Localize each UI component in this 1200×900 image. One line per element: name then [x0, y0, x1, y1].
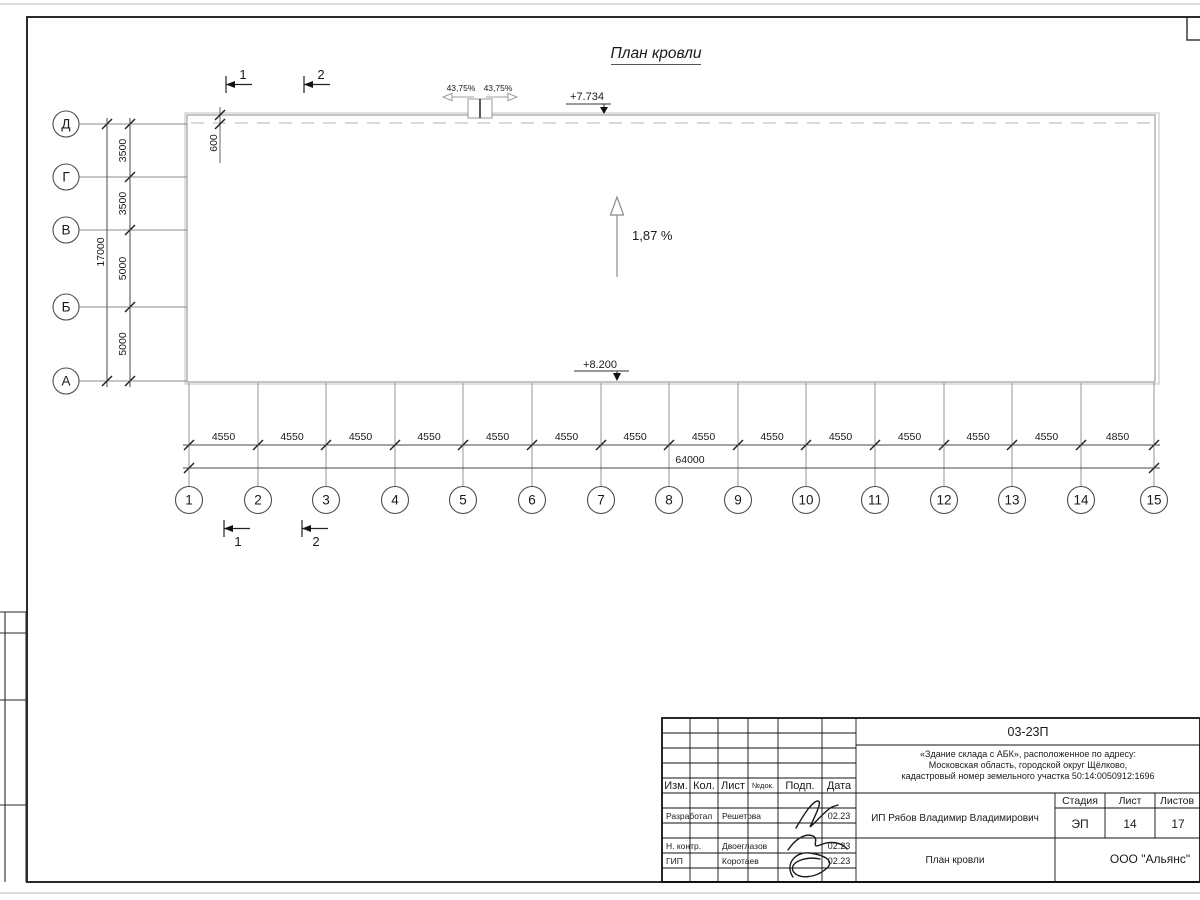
elevation-mark-top: +7.734: [566, 91, 611, 114]
col-axis-label: 3: [322, 493, 330, 508]
drawing-sheet: План кровли ДГВБА35003500500050001234567…: [0, 0, 1200, 900]
project-address-line2: Московская область, городской округ Щёлк…: [929, 760, 1127, 770]
page-title: План кровли: [611, 45, 702, 62]
col-dim-label: 4550: [623, 431, 647, 443]
elevation-top-label: +7.734: [570, 91, 604, 103]
stamp-name-ncontrol: Двоеглазов: [722, 841, 768, 851]
stamp-header-podp: Подп.: [785, 780, 814, 792]
col-axis-label: 6: [528, 493, 536, 508]
row-dim-label: 3500: [117, 139, 129, 163]
slope-value-label: 1,87 %: [632, 228, 673, 243]
doc-number: 03-23П: [1008, 725, 1049, 739]
col-dim-label: 4550: [486, 431, 510, 443]
col-dim-label: 4550: [555, 431, 579, 443]
canopy-slope-left-label: 43,75%: [447, 83, 476, 93]
corner-box: [1187, 17, 1200, 40]
sheet-value: 14: [1123, 817, 1137, 831]
row-axis-label: А: [61, 374, 70, 389]
stage-label: Стадия: [1062, 795, 1098, 807]
section-arrow-icon: [224, 525, 233, 532]
col-axis-label: 13: [1004, 493, 1019, 508]
stamp-role-ncontrol: Н. контр.: [666, 841, 701, 851]
sheet-label: Лист: [1119, 795, 1142, 807]
slope-arrow-right-icon: [508, 93, 517, 100]
col-axis-label: 8: [665, 493, 673, 508]
project-address-line1: «Здание склада с АБК», расположенное по …: [920, 749, 1136, 759]
stamp-name-developer: Решетова: [722, 811, 761, 821]
section-arrow-icon: [302, 525, 311, 532]
col-axis-label: 11: [868, 493, 882, 508]
col-dim-label: 4550: [349, 431, 373, 443]
sheets-value: 17: [1171, 817, 1185, 831]
col-axis-label: 5: [459, 493, 467, 508]
col-axis-label: 12: [936, 493, 951, 508]
roof-outline: [185, 113, 1159, 384]
row-dim-label: 3500: [117, 192, 129, 216]
row-dim-label: 5000: [117, 257, 129, 281]
section-mark-1-top: 1: [226, 67, 252, 93]
section-mark-1-bottom: 1: [224, 520, 250, 549]
col-dim-label: 4550: [898, 431, 922, 443]
col-dim-label: 4550: [966, 431, 990, 443]
stamp-date-gip: 02.23: [828, 856, 851, 866]
edge-offset-label: 600: [208, 134, 220, 152]
col-axis-label: 14: [1073, 493, 1089, 508]
side-stamp: [0, 612, 26, 882]
col-axis-label: 1: [185, 493, 193, 508]
row-dim-label: 5000: [117, 332, 129, 356]
stamp-header-doc: №док.: [752, 781, 774, 790]
slope-indicator: 1,87 %: [611, 197, 673, 277]
slope-arrow-left-icon: [443, 93, 452, 100]
stamp-header-list: Лист: [721, 780, 745, 792]
total-width-dim: 64000: [675, 454, 704, 466]
stage-value: ЭП: [1071, 817, 1088, 831]
stamp-date-developer: 02.23: [828, 811, 851, 821]
client-name: ИП Рябов Владимир Владимирович: [871, 812, 1039, 824]
stamp-header-izm: Изм.: [664, 780, 688, 792]
slope-arrow-icon: [611, 197, 624, 215]
stamp-header-kol: Кол.: [693, 780, 715, 792]
axes-and-dimensions: ДГВБА35003500500050001234567891011121314…: [53, 111, 1168, 514]
section-number: 2: [312, 534, 319, 549]
down-arrow-icon: [613, 373, 621, 381]
col-dim-label: 4550: [829, 431, 853, 443]
drawing-title: План кровли: [926, 855, 985, 866]
canopy-slope-right-label: 43,75%: [484, 83, 513, 93]
col-axis-label: 4: [391, 493, 399, 508]
col-dim-label: 4550: [212, 431, 236, 443]
col-axis-label: 15: [1146, 493, 1161, 508]
dimension-lines: 64000 17000: [95, 118, 1160, 468]
section-number: 1: [234, 534, 241, 549]
sheets-label: Листов: [1160, 795, 1195, 807]
title-block: 03-23П «Здание склада с АБК», расположен…: [662, 718, 1200, 882]
stamp-role-gip: ГИП: [666, 856, 683, 866]
col-axis-label: 10: [798, 493, 813, 508]
row-axis-label: Б: [62, 300, 71, 315]
signature-gip: [790, 853, 830, 877]
col-dim-label: 4550: [1035, 431, 1059, 443]
col-dim-label: 4550: [417, 431, 441, 443]
section-mark-2-top: 2: [304, 67, 330, 93]
col-dim-label: 4550: [280, 431, 304, 443]
col-dim-label: 4550: [760, 431, 784, 443]
row-axis-label: В: [61, 223, 70, 238]
section-arrow-icon: [226, 81, 235, 88]
col-axis-label: 7: [597, 493, 605, 508]
col-axis-label: 2: [254, 493, 262, 508]
section-number: 1: [239, 67, 246, 82]
col-axis-label: 9: [734, 493, 742, 508]
col-dim-label: 4550: [692, 431, 716, 443]
elevation-mark-bottom: +8.200: [574, 359, 629, 381]
section-mark-2-bottom: 2: [302, 520, 328, 549]
project-address-line3: кадастровый номер земельного участка 50:…: [902, 771, 1155, 781]
company-name: ООО "Альянс": [1110, 852, 1190, 866]
stamp-header-data: Дата: [827, 780, 852, 792]
total-height-dim: 17000: [95, 237, 107, 266]
section-number: 2: [317, 67, 324, 82]
section-marks: 1 2 1 2: [224, 67, 330, 549]
stamp-role-developer: Разработал: [666, 811, 712, 821]
section-arrow-icon: [304, 81, 313, 88]
elevation-bottom-label: +8.200: [583, 359, 617, 371]
col-dim-label: 4850: [1106, 431, 1130, 443]
stamp-name-gip: Коротаев: [722, 856, 759, 866]
row-axis-label: Д: [61, 117, 70, 132]
row-axis-label: Г: [62, 170, 70, 185]
